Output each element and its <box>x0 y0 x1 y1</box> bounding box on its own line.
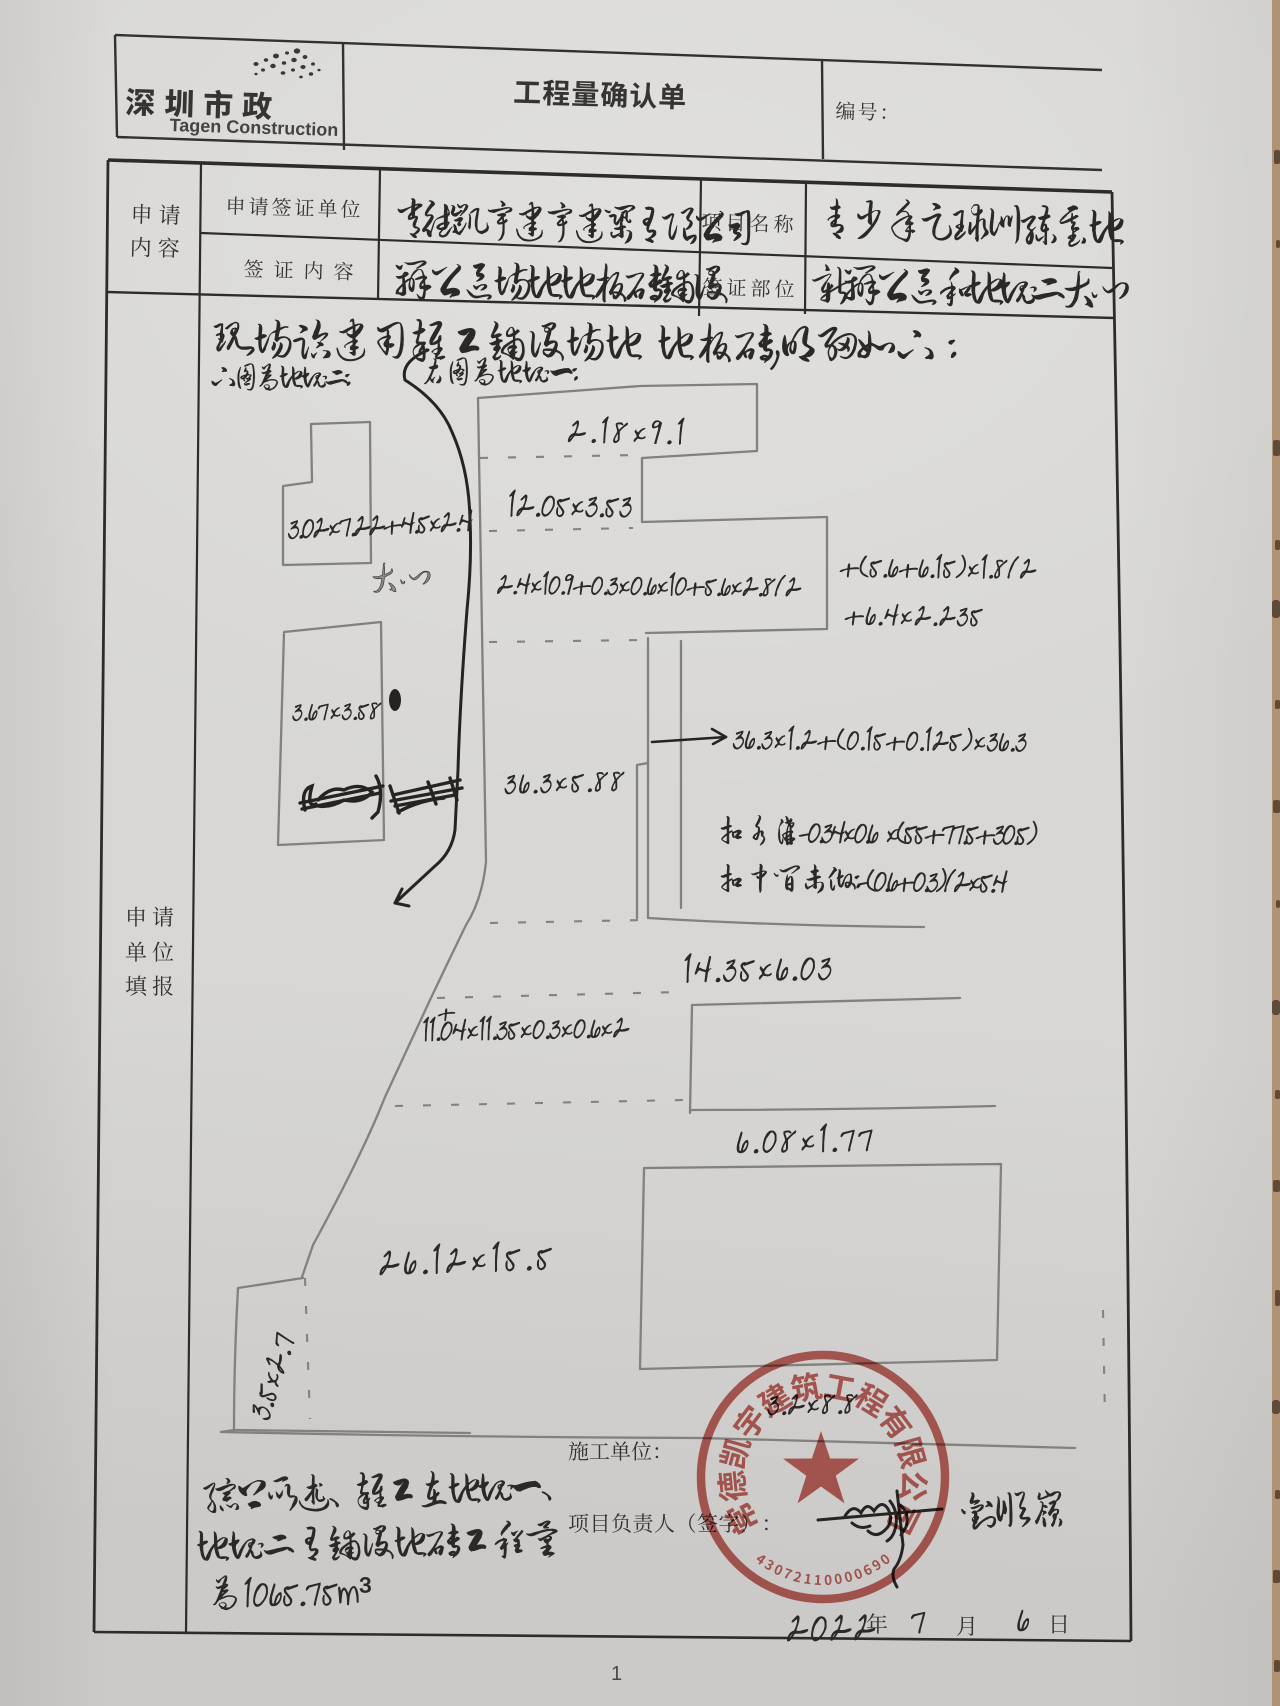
svg-text:1: 1 <box>813 1569 822 1589</box>
svg-text:德: 德 <box>707 1469 755 1504</box>
svg-text:1: 1 <box>802 1567 813 1588</box>
svg-text:0: 0 <box>824 1569 833 1589</box>
